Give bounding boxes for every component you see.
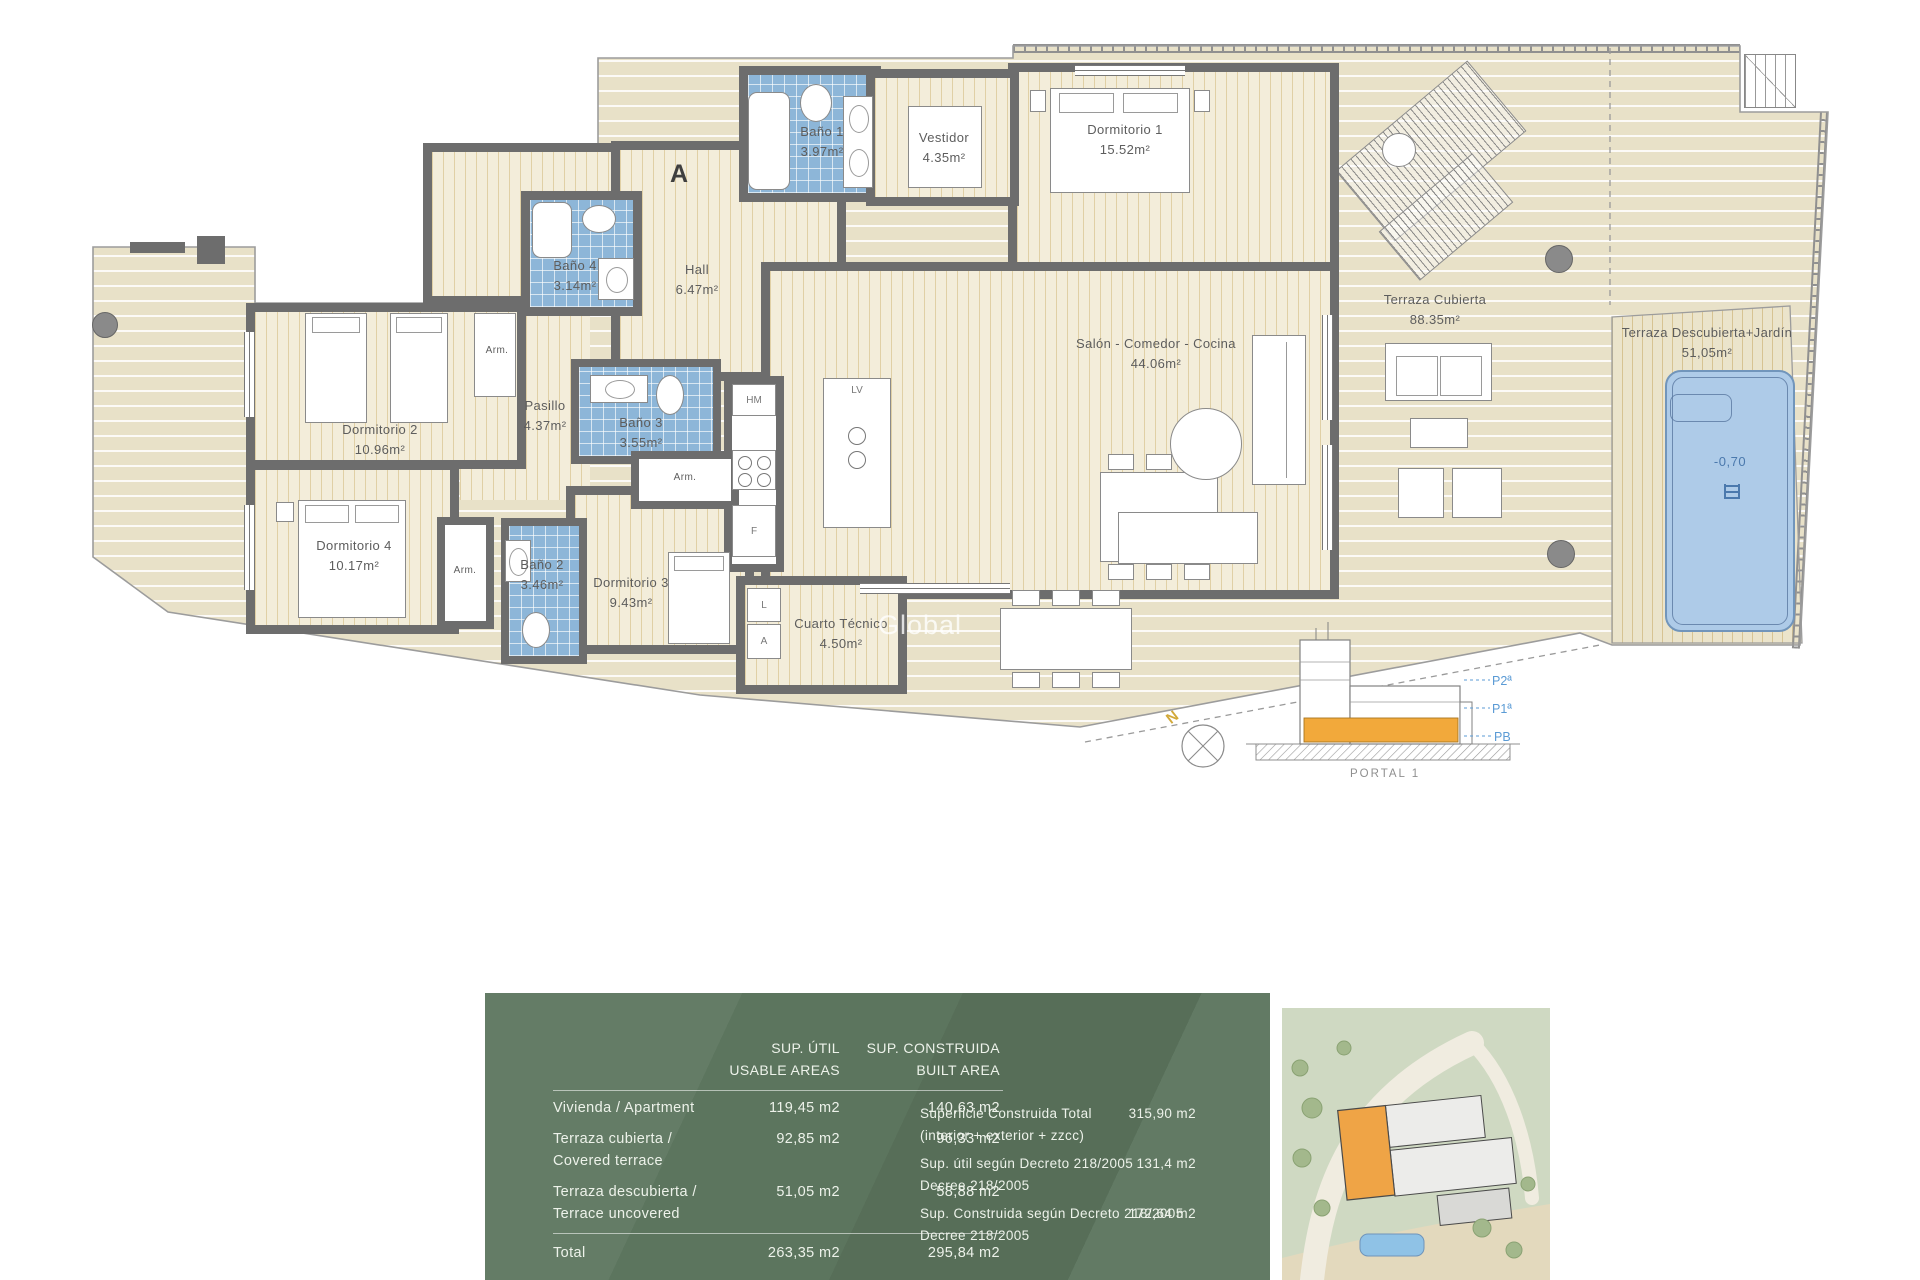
table-divider [553,1090,1003,1091]
wall-stub [130,242,185,253]
floor-label-p2: P2ª [1492,674,1512,688]
kitchen-island: LV [823,378,891,528]
wall-stub [197,236,225,264]
bed [305,313,367,423]
room-label-bano1: Baño 13.97m² [762,122,882,161]
pergola-table [1382,133,1416,167]
room-label-dormitorio2: Dormitorio 210.96m² [290,420,470,459]
col-header-built: SUP. CONSTRUIDABUILT AREA [820,1037,1000,1081]
chair [1052,590,1080,606]
fridge: F [732,505,776,557]
pool-steps [1670,394,1732,422]
terrace-column [1547,540,1575,568]
closet-label: Arm. [663,472,707,484]
coffee-table-round [1170,408,1242,480]
closet-label: Arm. [445,565,485,577]
chair [1012,590,1040,606]
sliding-door [860,583,1010,594]
room-label-dormitorio3: Dormitorio 39.43m² [551,573,711,612]
toilet [800,84,832,122]
room-label-bano4: Baño 43.14m² [515,256,635,295]
table-row-usable-value: 92,85 m2 [640,1128,840,1150]
pool-level-label: -0,70 [1667,454,1793,469]
cooktop [732,450,776,490]
table-row-usable-value: 51,05 m2 [640,1181,840,1203]
room-label-vestidor: Vestidor4.35m² [884,128,1004,167]
room-label-cuarto-tecnico: Cuarto Técnico4.50m² [790,614,892,653]
areas-panel: SUP. ÚTILUSABLE AREAS SUP. CONSTRUIDABUI… [485,993,1270,1280]
outdoor-dining-table [1000,608,1132,670]
sink-counter [590,375,648,403]
room-label-bano3: Baño 33.55m² [591,413,691,452]
entrance-door-marker: A [670,160,688,189]
nightstand [1194,90,1210,112]
outdoor-coffee-table [1410,418,1468,448]
bed [390,313,448,423]
room-label-dormitorio1: Dormitorio 115.52m² [1045,120,1205,159]
room-label-dormitorio4: Dormitorio 410.17m² [264,536,444,575]
floor-label-pb: PB [1494,730,1511,744]
sliding-door [1322,315,1333,420]
watermark: Global [878,610,962,641]
room-label-pasillo: Pasillo4.37m² [495,396,595,435]
room-label-terraza-cubierta: Terraza Cubierta88.35m² [1340,290,1530,329]
col-header-usable: SUP. ÚTILUSABLE AREAS [640,1037,840,1081]
window [244,332,255,417]
dishwasher-label: LV [824,385,890,396]
lounge-chair [1398,468,1444,518]
pool: -0,70 [1665,370,1795,632]
chair [1092,672,1120,688]
summary-row-value: 131,4 m2 [1110,1153,1196,1175]
nightstand [1030,90,1046,112]
chair [1052,672,1080,688]
room-label-salon: Salón - Comedor - Cocina44.06m² [1036,334,1276,373]
dryer-unit: A [747,624,781,659]
chair [1146,454,1172,470]
room-label-terraza-descubierta: Terraza Descubierta+Jardín51,05m² [1587,323,1827,362]
toilet [582,205,616,233]
pool-ladder-icon [1724,484,1740,499]
sofa [1118,512,1258,564]
chair [1184,564,1210,580]
room-label-hall: Hall6.47m² [647,260,747,299]
floor-plan: P2ª P1ª PB PORTAL 1 N [0,0,1920,810]
oven-microwave-unit: HM [732,384,776,416]
closet-label: Arm. [477,345,517,357]
table-row-usable-value: 119,45 m2 [640,1097,840,1119]
window [1075,65,1185,76]
chair [1108,454,1134,470]
washer-unit: L [747,588,781,622]
floor-label-p1: P1ª [1492,702,1512,716]
terrace-column [92,312,118,338]
site-plan-thumbnail [1282,1008,1550,1280]
chair [1146,564,1172,580]
section-elevation: P2ª P1ª PB PORTAL 1 [1246,622,1520,780]
floorplan-page: P2ª P1ª PB PORTAL 1 N [0,0,1920,1280]
bathtub [532,202,572,258]
lounge-chair [1452,468,1502,518]
outdoor-sofa [1385,343,1492,401]
portal-label: PORTAL 1 [1350,768,1420,780]
summary-row-value: 315,90 m2 [1110,1103,1196,1125]
nightstand [276,502,294,522]
summary-row-value: 172,64 m2 [1110,1203,1196,1225]
sliding-door [1322,445,1333,550]
chair [1092,590,1120,606]
highlighted-building [1338,1106,1395,1201]
compass: N [1163,708,1224,767]
toilet [522,612,550,648]
table-total-usable: 263,35 m2 [640,1242,840,1264]
section-highlight-floor [1304,718,1458,742]
toilet [656,375,684,415]
chair [1108,564,1134,580]
chair [1012,672,1040,688]
window [244,505,255,590]
terrace-column [1545,245,1573,273]
